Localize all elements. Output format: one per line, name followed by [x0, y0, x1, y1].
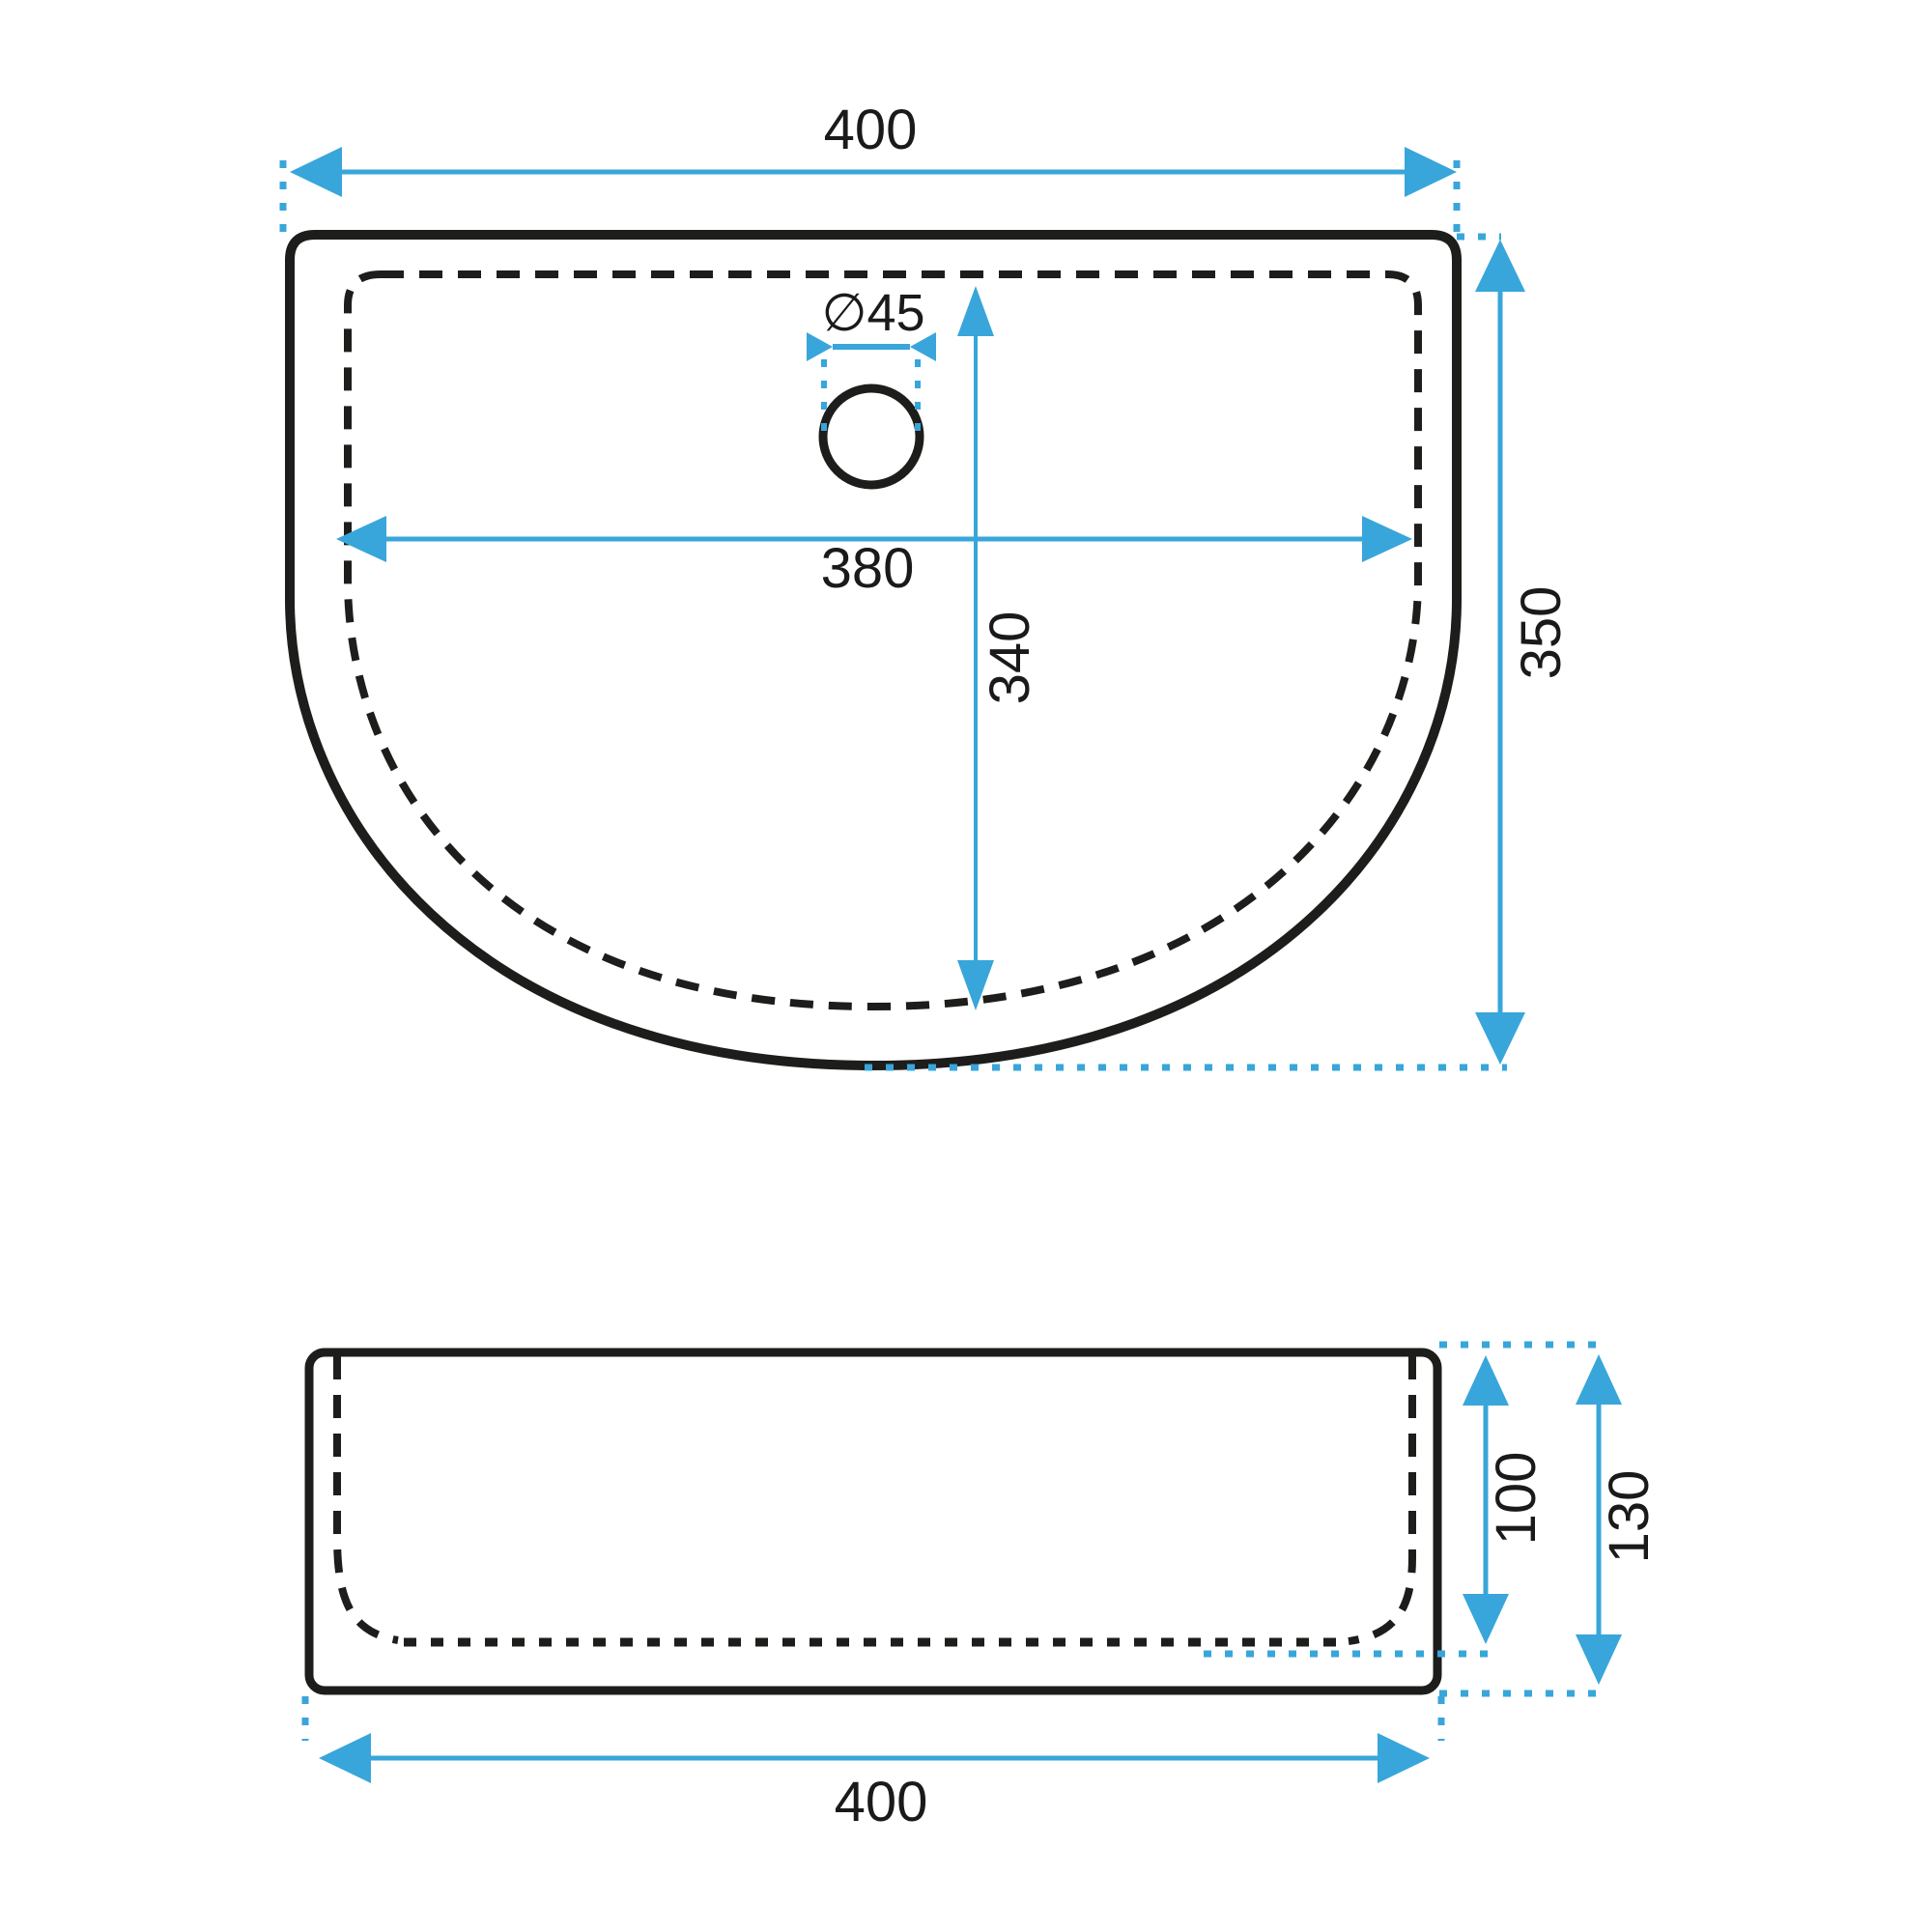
dim-label-drain-diameter: ∅45 — [821, 287, 924, 339]
dim-label-inner-depth: 340 — [982, 611, 1038, 705]
dim-label-bottom-width: 400 — [835, 1775, 928, 1831]
dim-label-overall-depth: 350 — [1514, 586, 1570, 680]
top-view-outline — [290, 235, 1457, 1065]
dim-label-overall-height: 130 — [1602, 1470, 1658, 1564]
technical-drawing-canvas: 400 ∅45 380 340 350 100 130 400 — [0, 0, 1932, 1932]
drawing-linework — [0, 0, 1932, 1932]
dim-label-top-width: 400 — [824, 102, 918, 158]
front-view-basin-dashed-outline — [337, 1356, 1412, 1642]
dim-label-inner-width: 380 — [821, 541, 915, 597]
top-view-basin-dashed-outline — [348, 274, 1418, 1007]
dim-label-basin-depth: 100 — [1489, 1452, 1545, 1546]
drain-hole-circle — [823, 388, 920, 485]
